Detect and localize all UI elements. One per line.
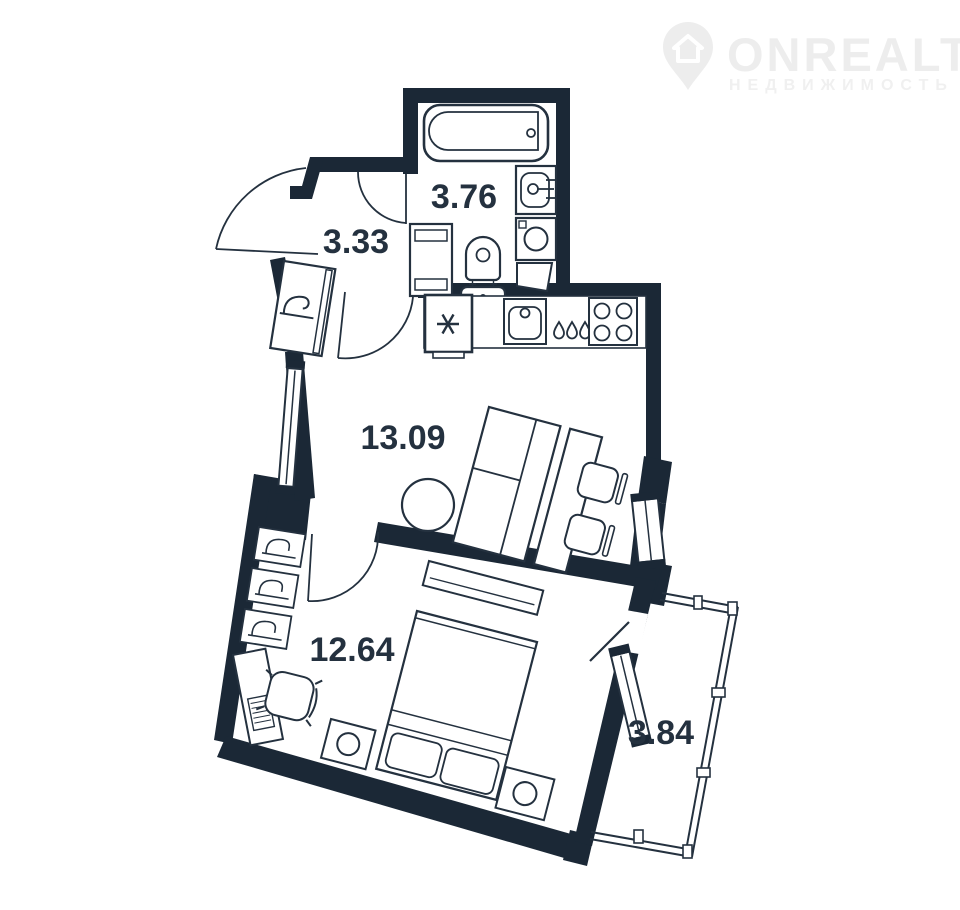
- round-table-icon: [402, 479, 454, 531]
- bedroom-door: [308, 532, 378, 601]
- water-heater-icon: [410, 224, 452, 296]
- floor-plan-drawing: ONREALT НЕДВИЖИМОСТЬ: [0, 0, 960, 910]
- living-kitchen-area-label: 13.09: [360, 419, 445, 457]
- floor-plan-page: ONREALT НЕДВИЖИМОСТЬ: [0, 0, 960, 910]
- bathroom-door: [358, 172, 406, 224]
- brand-title: ONREALT: [727, 28, 960, 81]
- shower-screen-icon: [517, 263, 552, 291]
- location-pin-icon: [663, 22, 713, 90]
- nightstand-icon: [321, 719, 376, 769]
- nightstand-icon: [495, 767, 554, 820]
- washing-machine-icon: [516, 218, 556, 260]
- bathroom-area-label: 3.76: [431, 178, 497, 216]
- watermark-logo: ONREALT НЕДВИЖИМОСТЬ: [663, 22, 960, 94]
- wall-bathroom-right: [556, 98, 570, 288]
- coat-hook-shelf: [247, 568, 299, 608]
- kitchen-fixtures: [424, 295, 646, 358]
- wall-bathroom-top: [403, 88, 570, 103]
- balcony-area-label: 3.84: [628, 714, 694, 752]
- toilet-icon: [466, 237, 500, 280]
- living-room-door: [338, 292, 413, 358]
- hallway-area-label: 3.33: [323, 223, 389, 261]
- entrance-door: [216, 168, 318, 254]
- coat-hook-shelf: [254, 527, 306, 567]
- wall-entry-stub: [290, 157, 324, 199]
- kitchen-sink-icon: [504, 299, 546, 344]
- brand-tagline: НЕДВИЖИМОСТЬ: [729, 77, 954, 94]
- wall-right-upper: [646, 295, 661, 462]
- wall-hall-top: [310, 157, 418, 172]
- bedroom-area-label: 12.64: [309, 631, 394, 669]
- coat-hook-shelf: [240, 609, 292, 649]
- bedroom-furniture: [233, 527, 554, 820]
- refrigerator-ledge: [433, 352, 464, 358]
- low-cabinet-icon: [423, 561, 544, 615]
